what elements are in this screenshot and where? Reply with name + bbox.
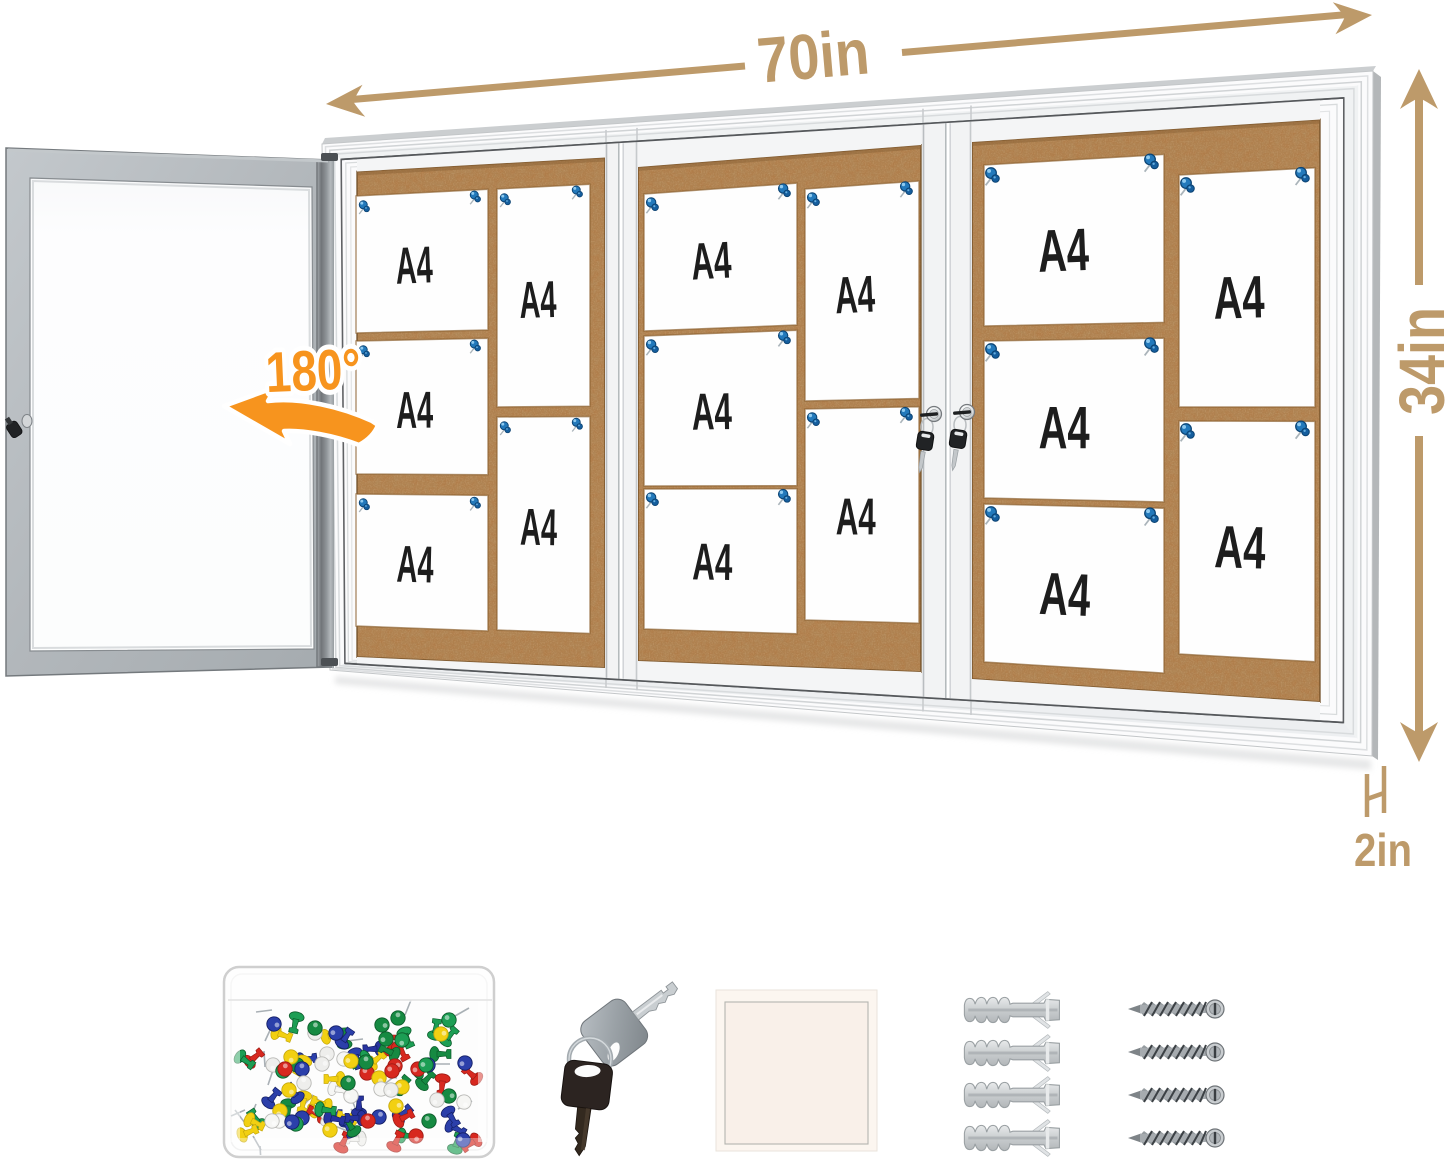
svg-text:A4: A4	[1036, 216, 1090, 285]
svg-text:A4: A4	[1214, 513, 1267, 582]
svg-text:A4: A4	[519, 271, 558, 330]
svg-text:A4: A4	[395, 236, 434, 295]
svg-text:70in: 70in	[754, 15, 872, 96]
svg-text:A4: A4	[834, 266, 877, 326]
svg-text:A4: A4	[396, 382, 433, 440]
svg-text:A4: A4	[690, 231, 733, 291]
svg-text:180°: 180°	[264, 337, 362, 405]
svg-text:34in: 34in	[1386, 307, 1445, 415]
svg-text:A4: A4	[396, 536, 434, 595]
svg-text:A4: A4	[691, 383, 732, 442]
svg-text:A4: A4	[1038, 560, 1092, 629]
svg-text:A4: A4	[1213, 263, 1266, 331]
svg-text:A4: A4	[1039, 394, 1091, 461]
svg-text:2in: 2in	[1354, 824, 1412, 876]
svg-text:A4: A4	[520, 499, 558, 558]
svg-text:A4: A4	[692, 533, 733, 592]
svg-text:A4: A4	[836, 488, 876, 546]
